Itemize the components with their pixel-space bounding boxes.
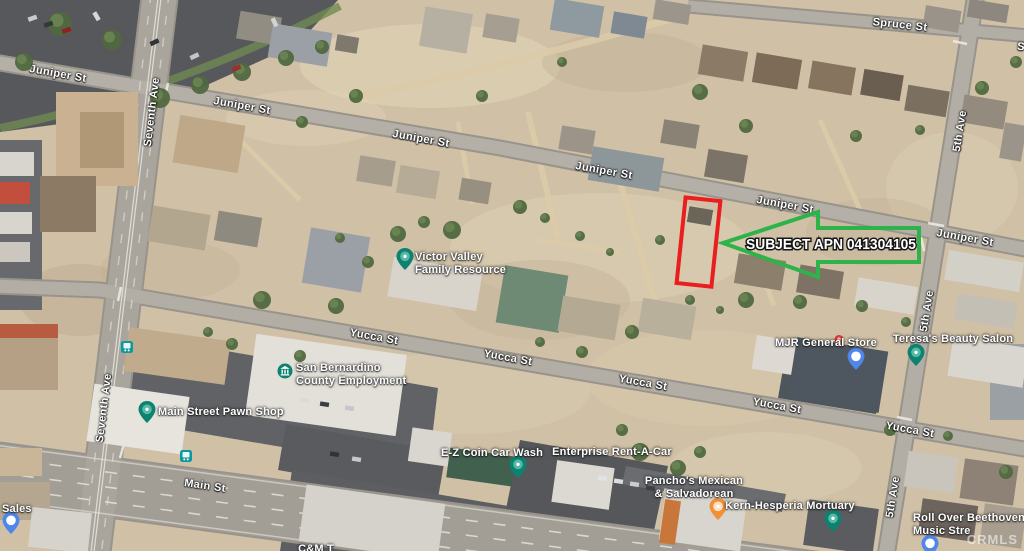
- subject-apn-label: SUBJECT APN 041304105: [746, 236, 916, 253]
- map-viewport[interactable]: Juniper StJuniper StJuniper StJuniper St…: [0, 0, 1024, 551]
- subject-parcel-outline: [677, 197, 721, 286]
- crmls-watermark: CRMLS: [967, 532, 1018, 547]
- annotation-layer: SUBJECT APN 041304105: [0, 0, 1024, 551]
